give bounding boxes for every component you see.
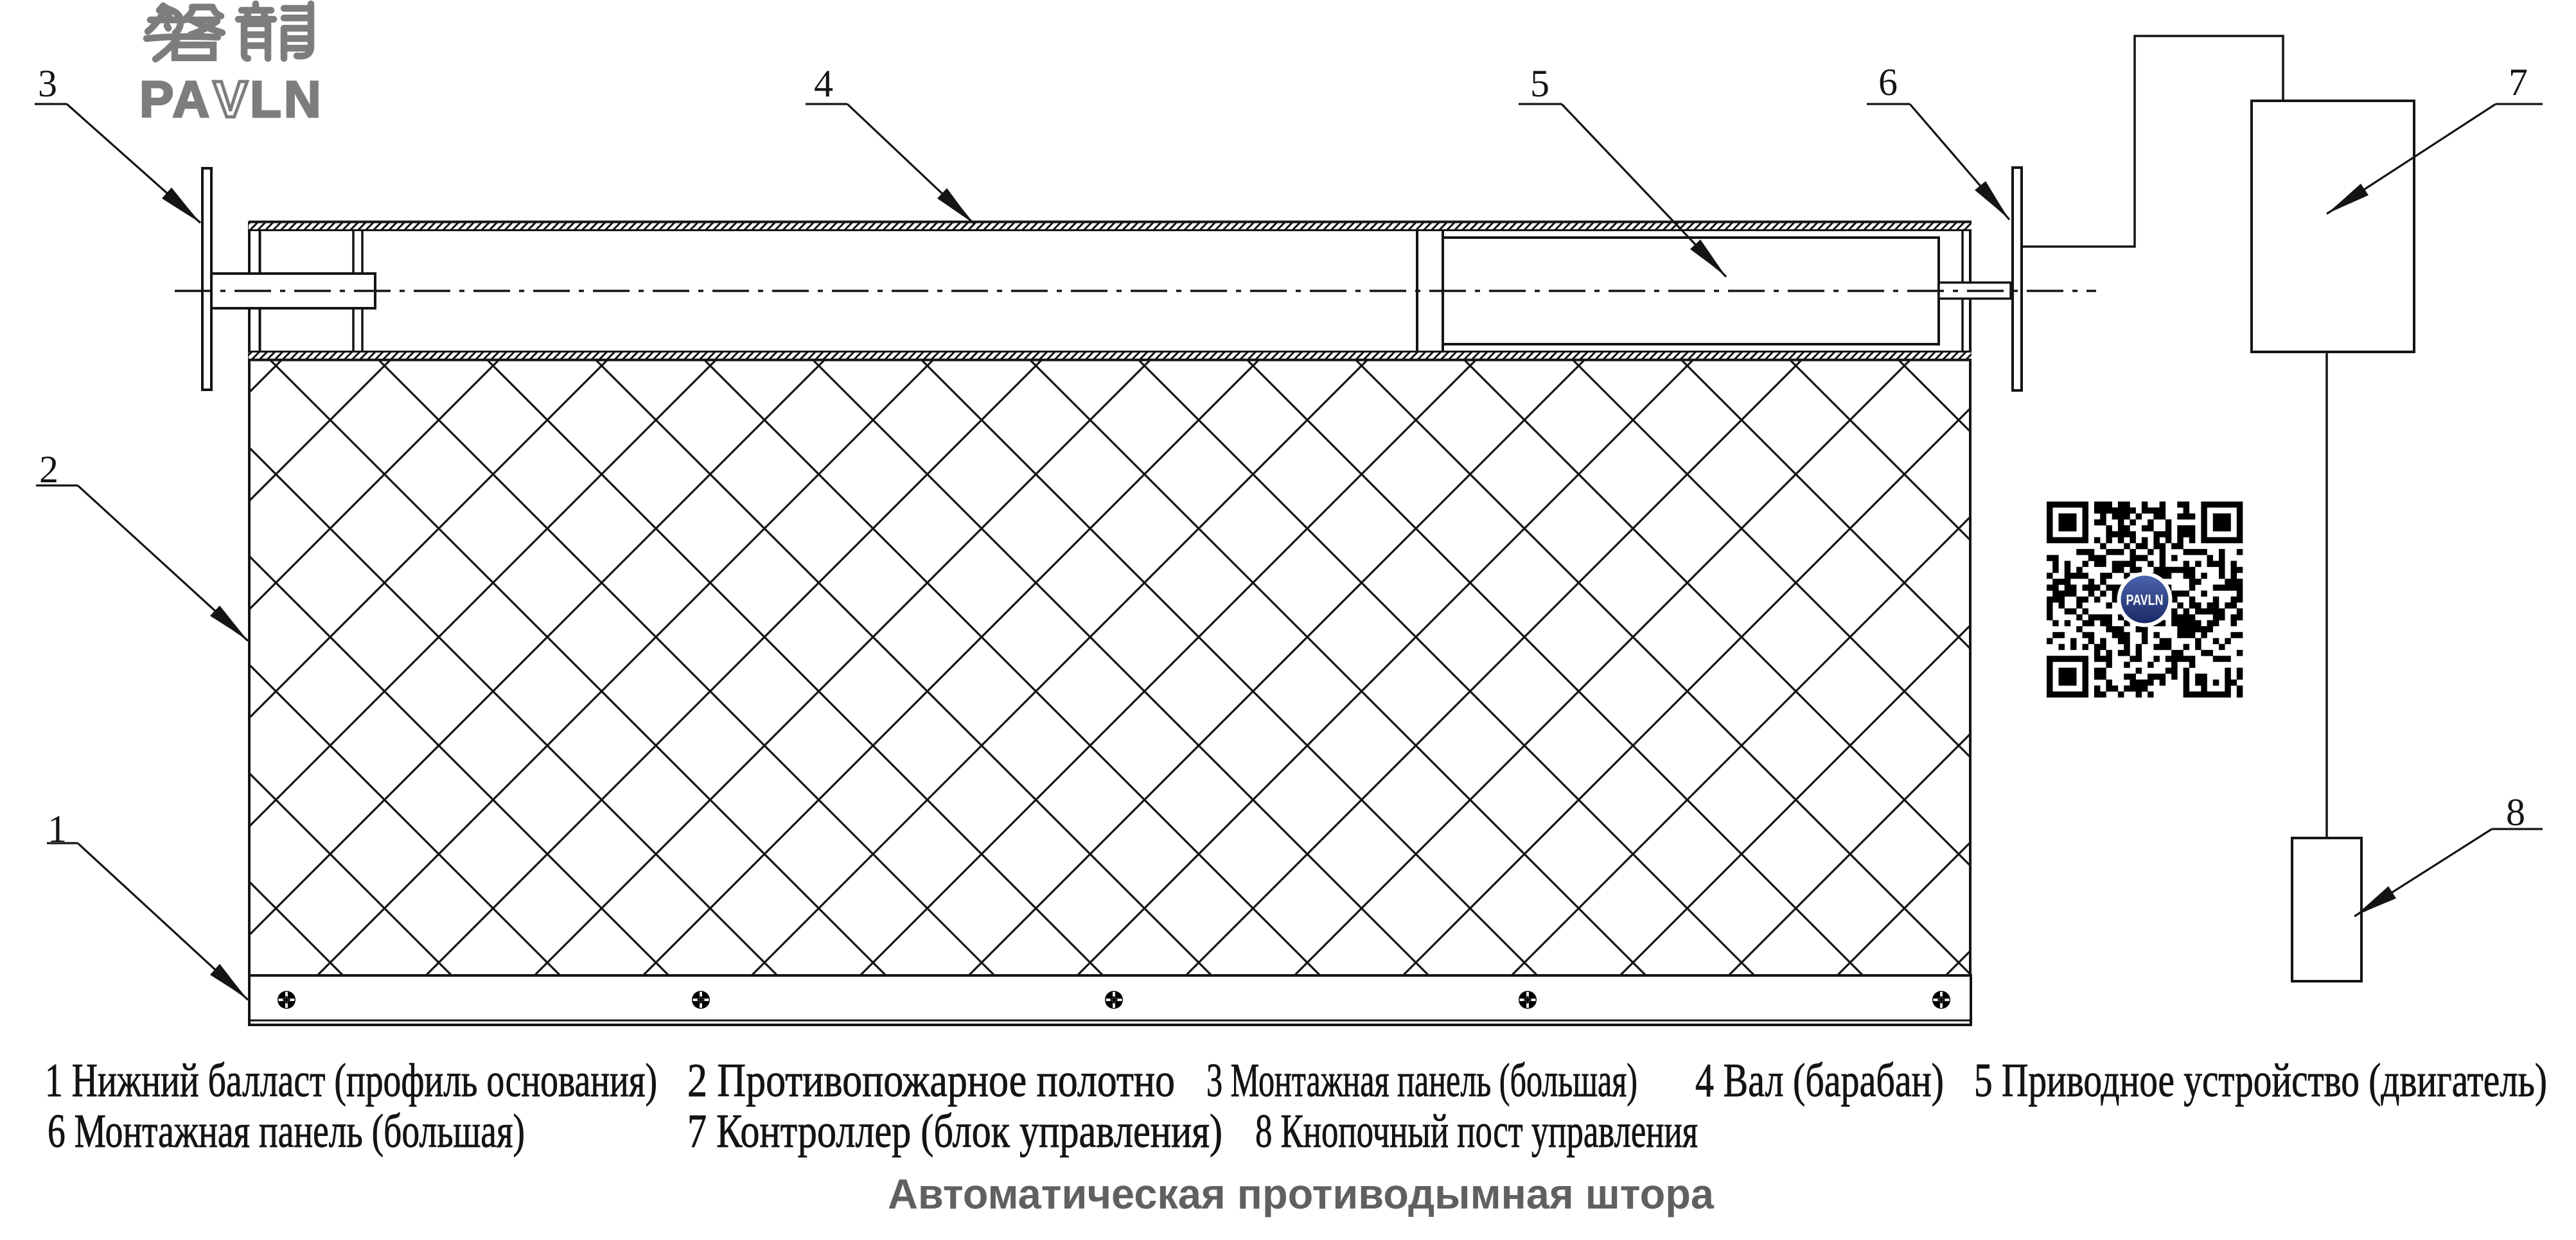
svg-text:6 Монтажная панель (большая): 6 Монтажная панель (большая) bbox=[48, 1105, 525, 1158]
svg-text:6: 6 bbox=[1878, 61, 1898, 103]
svg-text:4 Вал (барабан): 4 Вал (барабан) bbox=[1695, 1054, 1944, 1107]
svg-text:8: 8 bbox=[2506, 791, 2525, 834]
svg-text:3 Монтажная панель (большая): 3 Монтажная панель (большая) bbox=[1206, 1054, 1637, 1107]
svg-text:4: 4 bbox=[814, 62, 833, 105]
svg-text:V: V bbox=[213, 71, 247, 128]
svg-text:7: 7 bbox=[2509, 61, 2528, 103]
svg-text:5 Приводное устройство (двигат: 5 Приводное устройство (двигатель) bbox=[1974, 1054, 2547, 1107]
svg-text:PAVLN: PAVLN bbox=[2126, 591, 2164, 608]
svg-text:PA: PA bbox=[139, 71, 212, 128]
svg-text:2: 2 bbox=[39, 448, 58, 491]
svg-text:2 Противопожарное полотно: 2 Противопожарное полотно bbox=[687, 1054, 1175, 1107]
svg-text:1 Нижний балласт (профиль осно: 1 Нижний балласт (профиль основания) bbox=[45, 1054, 657, 1107]
svg-text:7 Контроллер (блок управления): 7 Контроллер (блок управления) bbox=[687, 1105, 1222, 1158]
svg-text:LN: LN bbox=[250, 71, 324, 128]
svg-text:5: 5 bbox=[1530, 62, 1549, 105]
svg-text:8 Кнопочный пост управления: 8 Кнопочный пост управления bbox=[1255, 1105, 1698, 1158]
svg-text:Автоматическая противодымная ш: Автоматическая противодымная штора bbox=[888, 1170, 1715, 1218]
svg-text:3: 3 bbox=[38, 62, 57, 105]
